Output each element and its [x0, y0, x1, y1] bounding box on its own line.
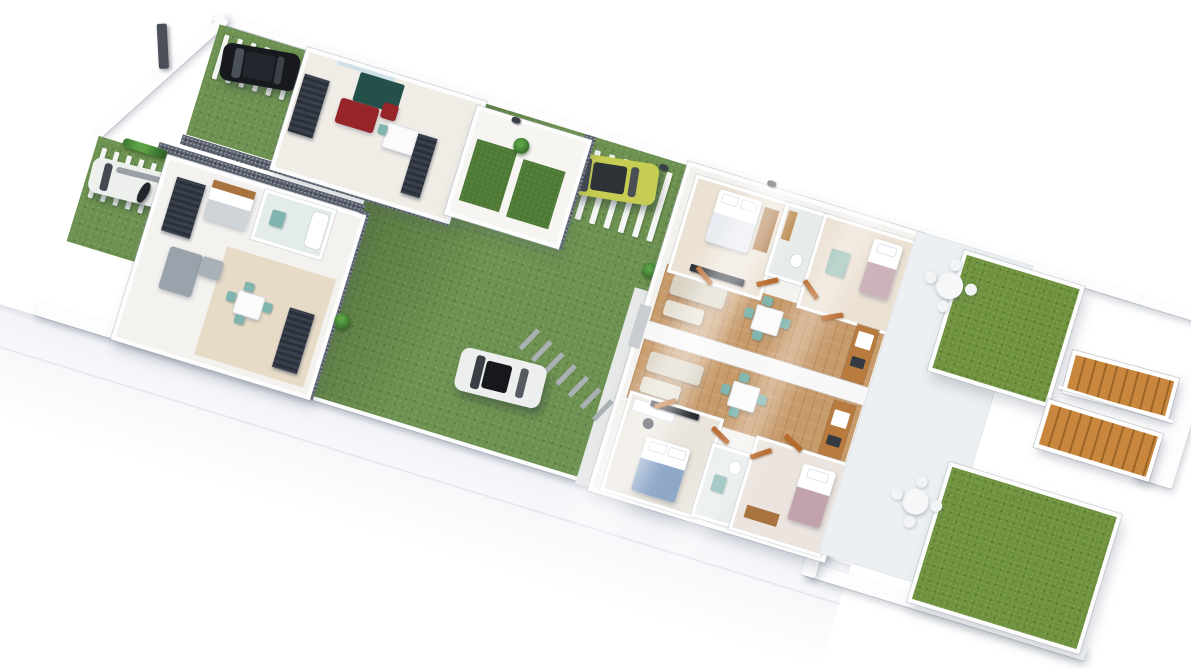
fence-post [531, 340, 553, 362]
blue-bed [631, 436, 691, 503]
outdoor-table [933, 269, 967, 303]
bed-blanket-pink [858, 261, 896, 300]
sink [826, 434, 842, 448]
outdoor-chair [948, 258, 963, 273]
single-bed [858, 238, 903, 300]
fence-post [568, 376, 590, 398]
suv-sunroof [481, 360, 513, 393]
gray-sofa [158, 246, 203, 298]
bed-blanket-mauve [787, 486, 829, 528]
fence-post [555, 364, 577, 386]
stove [854, 331, 874, 351]
outdoor-chair [929, 498, 944, 513]
outdoor-chair [902, 514, 917, 529]
bath-mat [268, 209, 286, 228]
stove [830, 409, 850, 429]
unit-b-bed [202, 180, 256, 231]
fence-post [580, 387, 602, 409]
bed-blanket-blue [631, 457, 685, 503]
pillow [667, 446, 687, 461]
teal-bath-mat [710, 474, 727, 494]
van-windshield [99, 163, 114, 192]
toilet [728, 460, 742, 476]
wardrobe [744, 505, 780, 527]
toilet [789, 253, 803, 269]
vanity [781, 210, 798, 241]
pillow [806, 468, 830, 484]
office-chair [641, 417, 655, 431]
pillow [876, 243, 898, 258]
pillow [740, 199, 759, 214]
bed-blanket [705, 212, 756, 254]
car-rear-window [627, 167, 640, 198]
floorplan-scene [0, 0, 1191, 670]
sink [849, 356, 865, 370]
car-roof [242, 51, 276, 82]
louvre-panel [161, 177, 206, 239]
red-armchair [380, 102, 400, 122]
suv-rear-window [514, 368, 529, 399]
outdoor-chair [914, 474, 929, 489]
outdoor-chair [963, 282, 978, 297]
outdoor-table [899, 485, 931, 517]
bed-headboard [212, 180, 256, 201]
courtyard-grass [506, 159, 566, 229]
bed-blanket [202, 199, 250, 231]
bathtub [304, 211, 330, 250]
courtyard-grass [459, 139, 518, 212]
car-roof-sunroof [590, 162, 628, 195]
outdoor-chair [935, 299, 950, 314]
pillow [720, 193, 739, 208]
gate-post [157, 23, 169, 68]
plot [38, 0, 1191, 670]
rug [824, 248, 851, 279]
pillow [648, 441, 668, 456]
